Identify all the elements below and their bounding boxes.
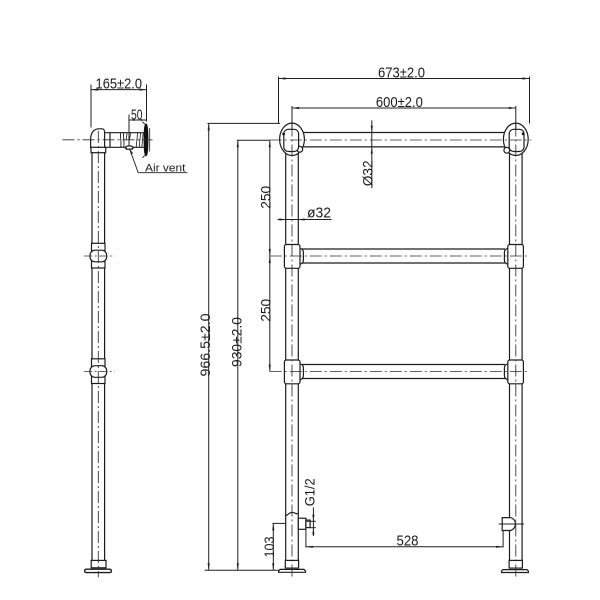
svg-text:673±2.0: 673±2.0 <box>378 64 425 81</box>
svg-text:250: 250 <box>257 299 273 322</box>
svg-text:966.5±2.0: 966.5±2.0 <box>197 313 213 376</box>
svg-text:G1/2: G1/2 <box>301 478 317 506</box>
svg-text:930±2.0: 930±2.0 <box>228 317 244 367</box>
svg-text:ø32: ø32 <box>307 204 331 221</box>
svg-text:Ø32: Ø32 <box>360 160 376 186</box>
svg-text:528: 528 <box>397 532 419 549</box>
svg-text:165±2.0: 165±2.0 <box>96 75 143 92</box>
svg-text:103: 103 <box>261 536 277 557</box>
svg-text:250: 250 <box>257 186 273 209</box>
svg-text:600±2.0: 600±2.0 <box>376 94 423 111</box>
svg-text:Air vent: Air vent <box>145 163 186 175</box>
svg-text:50: 50 <box>131 106 143 123</box>
